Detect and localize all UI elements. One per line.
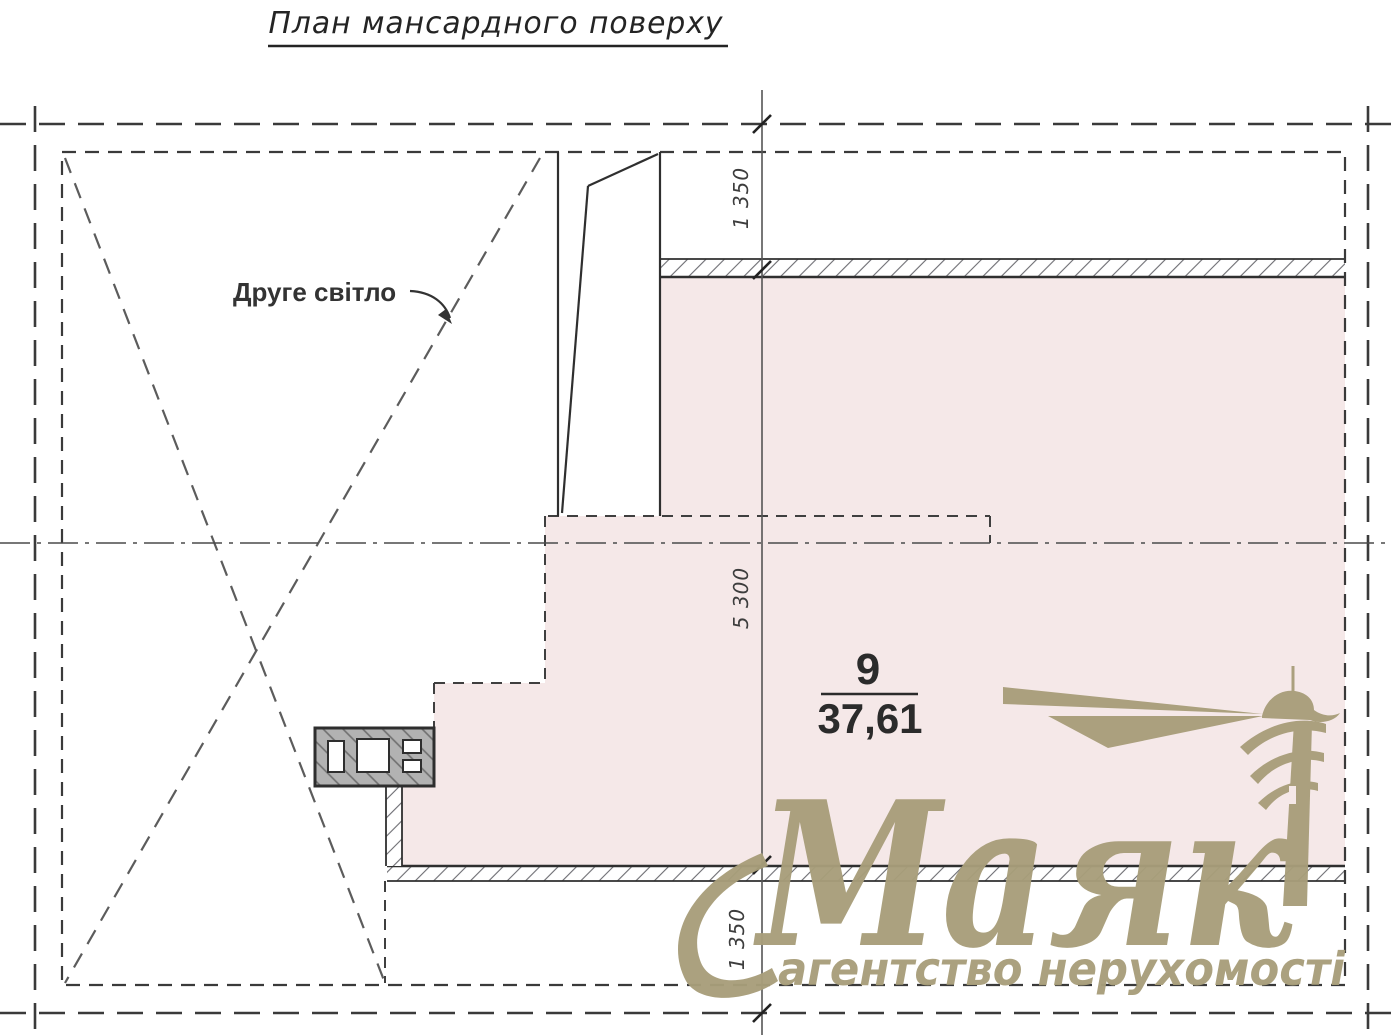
- dimension-label-top: 1 350: [729, 167, 753, 229]
- second-light-label: Друге світло: [233, 277, 396, 307]
- vent-block: [315, 728, 434, 786]
- dimension-label-bottom: 1 350: [725, 908, 749, 970]
- vent-opening: [403, 760, 421, 772]
- room-number: 9: [856, 645, 880, 694]
- watermark-tagline: агентство нерухомості: [778, 942, 1346, 996]
- dimension-label-middle: 5 300: [729, 567, 753, 629]
- wall-strip-left: [386, 785, 402, 866]
- room-area: 37,61: [817, 695, 922, 742]
- attic-floor-plan: План мансардного поверху: [0, 0, 1400, 1035]
- vent-opening: [328, 741, 344, 772]
- vent-opening: [403, 740, 421, 753]
- drawing-title: План мансардного поверху: [268, 6, 728, 46]
- vent-opening: [357, 739, 389, 772]
- page-title: План мансардного поверху: [269, 6, 724, 41]
